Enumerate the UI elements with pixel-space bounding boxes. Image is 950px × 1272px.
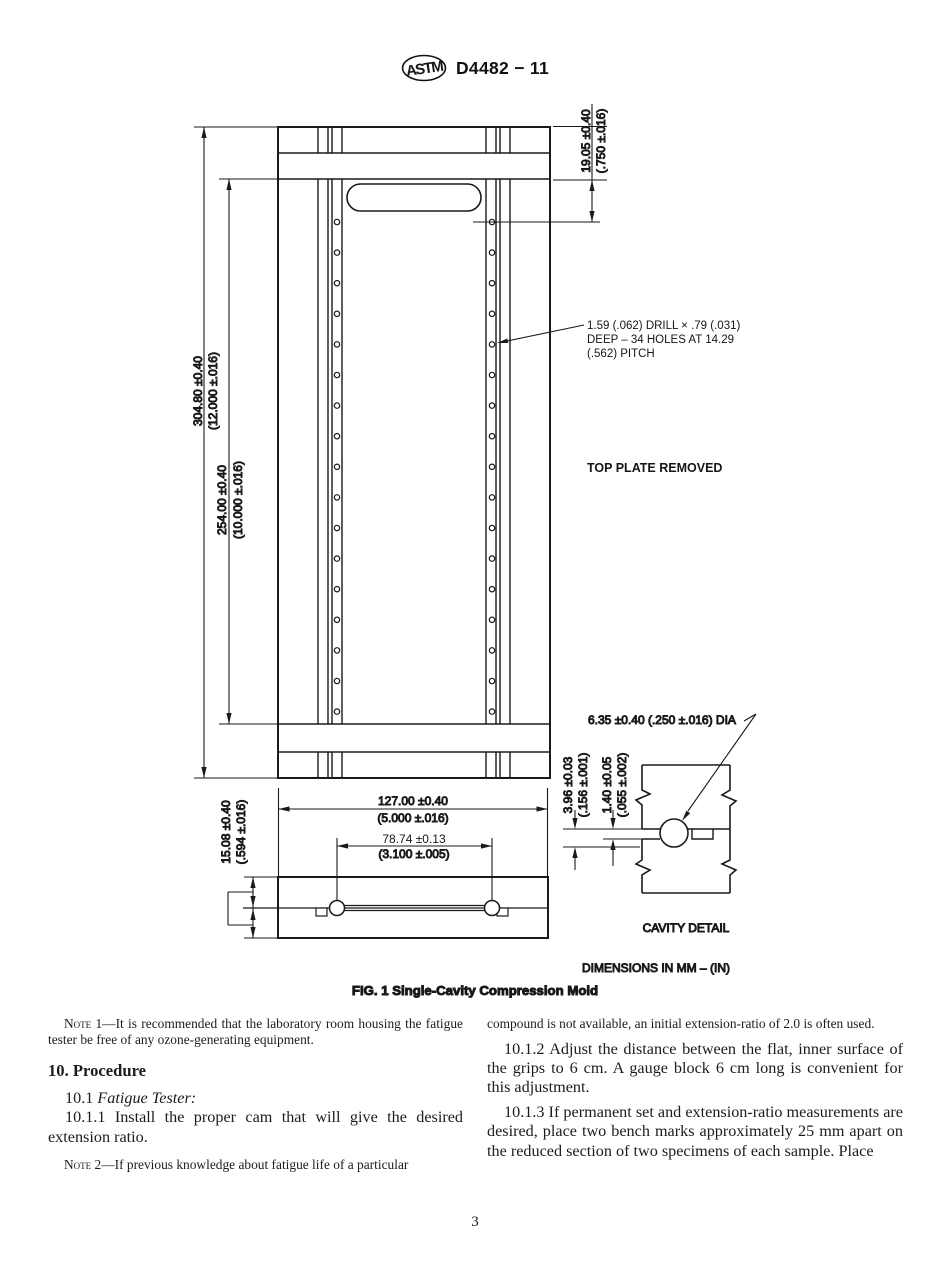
text-column-right: compound is not available, an initial ex… xyxy=(487,1016,903,1161)
dim-cavity-depths xyxy=(563,810,642,870)
note-2-text: —If previous knowledge about fatigue lif… xyxy=(101,1157,408,1172)
dim-width-in: (5.000 ±.016) xyxy=(377,811,448,825)
document-page: { "header": { "logo_text": "ASTM", "desi… xyxy=(0,0,950,1272)
figure-caption: FIG. 1 Single-Cavity Compression Mold xyxy=(352,983,598,998)
dim-overall-height-in: (12.000 ±.016) xyxy=(206,352,220,430)
note-1-label: Note 1 xyxy=(64,1016,102,1031)
dim-pin-span-in: (3.100 ±.005) xyxy=(378,847,449,861)
figure-1-drawing: 304.80 ±0.40 (12.000 ±.016) 254.00 ±0.40… xyxy=(0,0,950,1010)
para-10-1-1: 10.1.1 Install the proper cam that will … xyxy=(48,1108,463,1146)
cavity-detail-label: CAVITY DETAIL xyxy=(643,921,730,935)
note-2-label: Note 2 xyxy=(64,1157,101,1172)
dim-pin-diameter: 6.35 ±0.40 (.250 ±.016) DIA xyxy=(588,713,736,727)
drill-note-line1: 1.59 (.062) DRILL × .79 (.031) xyxy=(587,320,740,332)
bolt-holes xyxy=(334,219,494,714)
section-heading-procedure: 10. Procedure xyxy=(48,1061,463,1080)
dim-overall-height xyxy=(194,127,278,778)
dim-cavity-depth-mm: 3.96 ±0.03 xyxy=(561,756,575,813)
dim-pin-diameter-leader xyxy=(682,714,756,821)
note-2: Note 2—If previous knowledge about fatig… xyxy=(48,1157,463,1173)
para-10-1-title: Fatigue Tester: xyxy=(97,1089,196,1107)
dim-channel-depth-in: (.055 ±.002) xyxy=(615,753,629,818)
text-column-left: Note 1—It is recommended that the labora… xyxy=(48,1016,463,1172)
dim-cavity-depth-in: (.156 ±.001) xyxy=(576,753,590,818)
plan-view xyxy=(278,127,550,778)
para-10-1-num: 10.1 xyxy=(65,1089,97,1107)
dim-top-offset-mm: 19.05 ±0.40 xyxy=(579,109,593,173)
dim-overall-height-mm: 304.80 ±0.40 xyxy=(191,356,205,426)
dim-rail-height-mm: 254.00 ±0.40 xyxy=(215,465,229,535)
top-plate-removed-label: TOP PLATE REMOVED xyxy=(587,461,722,475)
page-number: 3 xyxy=(0,1214,950,1231)
dim-pin-span-mm: 78.74 ±0.13 xyxy=(382,832,446,846)
dim-plate-thickness-in: (.594 ±.016) xyxy=(234,800,248,865)
dim-rail-height-in: (10.000 ±.016) xyxy=(231,461,245,539)
dim-channel-depth-mm: 1.40 ±0.05 xyxy=(600,756,614,813)
cavity-detail xyxy=(636,765,736,893)
dim-plate-thickness-mm: 15.08 ±0.40 xyxy=(219,800,233,864)
drill-note-line3: (.562) PITCH xyxy=(587,348,655,360)
para-10-1-2: 10.1.2 Adjust the distance between the f… xyxy=(487,1040,903,1098)
dim-top-offset-in: (.750 ±.016) xyxy=(594,109,608,174)
dim-width-mm: 127.00 ±0.40 xyxy=(378,794,448,808)
note-1-text: —It is recommended that the laboratory r… xyxy=(48,1016,463,1047)
note-2-continuation: compound is not available, an initial ex… xyxy=(487,1016,903,1032)
note-1: Note 1—It is recommended that the labora… xyxy=(48,1016,463,1047)
para-10-1: 10.1 Fatigue Tester: xyxy=(48,1089,463,1108)
drill-note-line2: DEEP – 34 HOLES AT 14.29 xyxy=(587,334,734,346)
para-10-1-3: 10.1.3 If permanent set and extension-ra… xyxy=(487,1103,903,1161)
units-note: DIMENSIONS IN MM – (IN) xyxy=(582,961,730,975)
